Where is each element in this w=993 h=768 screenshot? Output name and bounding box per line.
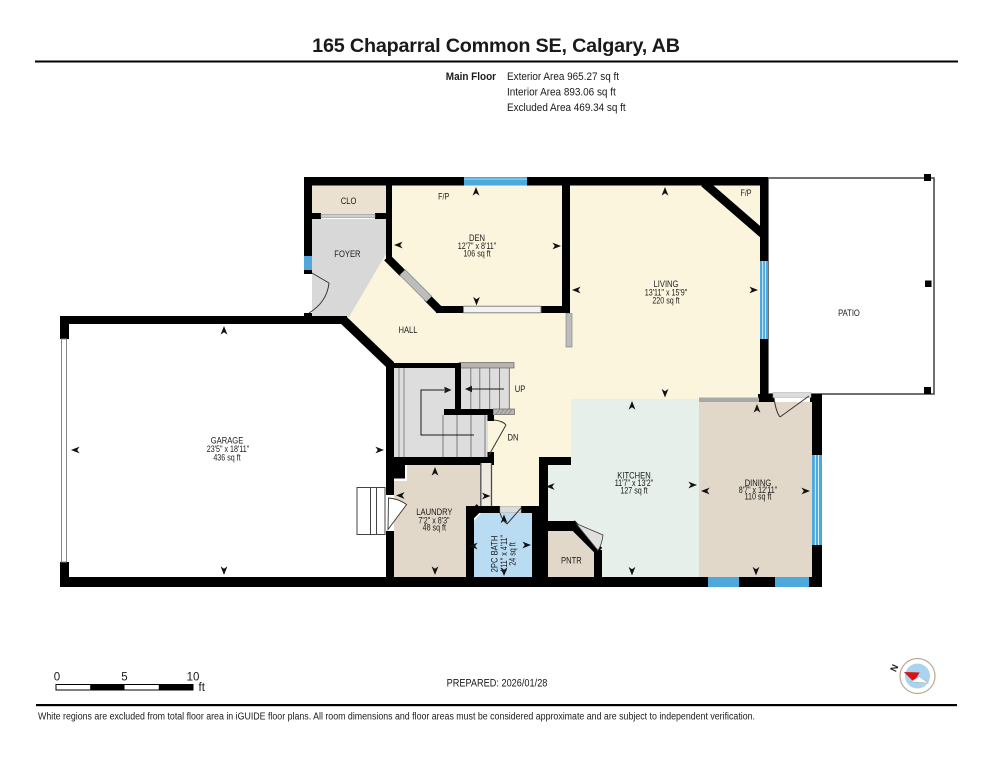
- svg-text:White regions are excluded fro: White regions are excluded from total fl…: [38, 712, 755, 723]
- svg-text:10: 10: [187, 672, 200, 684]
- svg-text:F/P: F/P: [438, 192, 449, 202]
- svg-text:PNTR: PNTR: [561, 555, 582, 566]
- svg-text:Main Floor: Main Floor: [446, 70, 496, 83]
- svg-text:24 sq ft: 24 sq ft: [508, 542, 518, 566]
- svg-text:0: 0: [54, 672, 60, 684]
- svg-text:HALL: HALL: [398, 324, 417, 335]
- svg-text:PREPARED: 2026/01/28: PREPARED: 2026/01/28: [447, 678, 548, 690]
- svg-text:5: 5: [121, 672, 127, 684]
- svg-text:CLO: CLO: [341, 195, 357, 206]
- svg-text:2PC BATH: 2PC BATH: [489, 536, 500, 573]
- svg-text:Exterior Area 965.27 sq ft: Exterior Area 965.27 sq ft: [507, 70, 619, 83]
- svg-text:48 sq ft: 48 sq ft: [423, 523, 447, 533]
- svg-text:F/P: F/P: [740, 189, 751, 199]
- svg-text:436 sq ft: 436 sq ft: [213, 453, 241, 463]
- svg-text:106 sq ft: 106 sq ft: [463, 249, 491, 259]
- svg-text:ft: ft: [199, 682, 206, 694]
- svg-text:165 Chaparral Common SE, Calga: 165 Chaparral Common SE, Calgary, AB: [312, 35, 680, 57]
- svg-text:FOYER: FOYER: [334, 248, 360, 259]
- svg-text:DN: DN: [507, 432, 518, 443]
- svg-text:127 sq ft: 127 sq ft: [620, 486, 648, 496]
- svg-text:220 sq ft: 220 sq ft: [652, 296, 680, 306]
- svg-text:PATIO: PATIO: [838, 307, 860, 318]
- svg-text:Interior Area 893.06 sq ft: Interior Area 893.06 sq ft: [507, 86, 616, 99]
- svg-text:UP: UP: [515, 383, 526, 394]
- svg-text:110 sq ft: 110 sq ft: [745, 492, 772, 502]
- svg-text:Excluded Area 469.34 sq ft: Excluded Area 469.34 sq ft: [507, 101, 626, 114]
